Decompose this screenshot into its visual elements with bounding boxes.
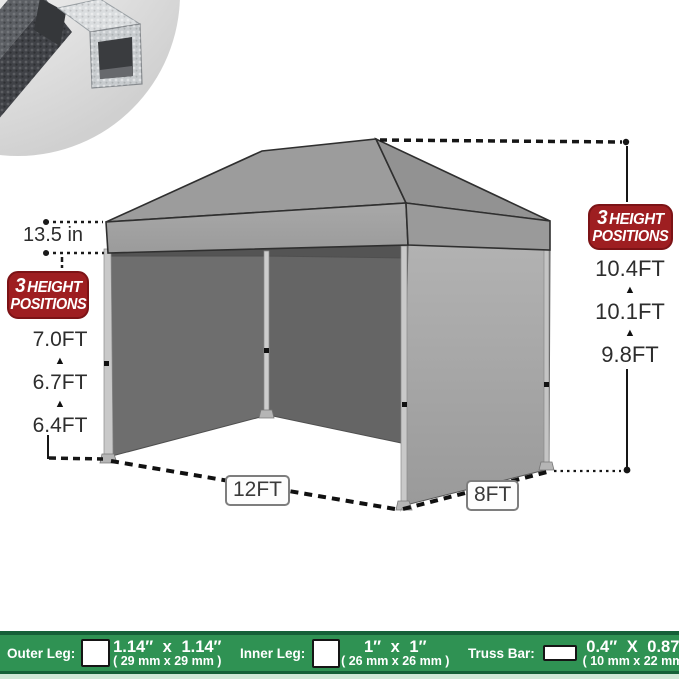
valance-height-label: 13.5 in [18,224,88,247]
measure-dot [623,139,629,145]
inner-leg-spec: Inner Leg: 1″ x 1″ ( 26 mm x 26 mm ) [240,635,443,671]
measure-dot [624,467,631,474]
spec-bar: Outer Leg: 1.14″ x 1.14″ ( 29 mm x 29 mm… [0,631,679,679]
truss-bar-label: Truss Bar: [468,646,535,661]
outer-leg-spec: Outer Leg: 1.14″ x 1.14″ ( 29 mm x 29 mm… [7,635,217,671]
outer-leg-tube-icon [81,639,110,667]
product-dimension-image: 13.5 in 3HEIGHT POSITIONS 3HEIGHT POSITI… [0,0,679,679]
rear-left-leg [264,251,269,414]
back-sidewall-interior [266,256,406,444]
badge-word1: HEIGHT [609,211,664,228]
right-sidewall-exterior [402,244,550,506]
up-arrow-icon: ▲ [625,284,636,297]
leg-adjust-button [104,361,109,366]
spec-bar-main: Outer Leg: 1.14″ x 1.14″ ( 29 mm x 29 mm… [0,635,679,671]
width-dimension-label: 12FT [225,475,290,506]
wall-height-top: 7.0FT [33,328,88,351]
peak-height-scale: 10.4FT ▲ 10.1FT ▲ 9.8FT [587,257,673,366]
badge-word2: POSITIONS [593,228,669,245]
badge-word2: POSITIONS [10,296,86,313]
depth-dimension-label: 8FT [466,480,519,511]
left-sidewall-interior [110,256,268,456]
badge-word1: HEIGHT [27,279,82,296]
inner-leg-label: Inner Leg: [240,646,305,661]
left-ground-dashed-line [49,458,103,459]
badge-count: 3 [597,207,607,229]
inner-leg-dimensions: 1″ x 1″ ( 26 mm x 26 mm ) [347,639,443,668]
leg-adjust-button [264,348,269,353]
height-positions-badge-left: 3HEIGHT POSITIONS [7,271,89,319]
truss-bar-tube-icon [543,645,577,661]
measure-dot [43,250,49,256]
inner-leg-tube-icon [312,639,340,668]
outer-leg-dimensions: 1.14″ x 1.14″ ( 29 mm x 29 mm ) [117,639,217,668]
truss-bar-size-in: 0.4″ X 0.87″ [586,639,679,655]
badge-line1: 3HEIGHT [15,278,82,296]
wall-height-low: 6.4FT [33,414,88,437]
up-arrow-icon: ▲ [55,355,66,368]
wall-height-scale: 7.0FT ▲ 6.7FT ▲ 6.4FT [18,328,102,437]
leg-adjust-button [544,382,549,387]
up-arrow-icon: ▲ [625,327,636,340]
outer-leg-label: Outer Leg: [7,646,75,661]
spec-bar-bottom-strip [0,674,679,679]
outer-leg-size-mm: ( 29 mm x 29 mm ) [113,655,221,668]
leg-tube-closeup-inset [0,0,190,160]
front-right-leg [401,246,407,504]
rear-left-foot [259,410,274,418]
up-arrow-icon: ▲ [55,398,66,411]
truss-bar-dimensions: 0.4″ X 0.87″ ( 10 mm x 22 mm ) [587,639,679,668]
leg-adjust-button [402,402,407,407]
wall-height-mid: 6.7FT [33,371,88,394]
peak-height-top: 10.4FT [595,257,665,280]
peak-height-mid: 10.1FT [595,300,665,323]
rear-right-leg [544,250,549,467]
front-left-leg [104,249,113,456]
truss-bar-size-mm: ( 10 mm x 22 mm ) [583,655,679,668]
inner-leg-size-in: 1″ x 1″ [364,639,427,655]
badge-count: 3 [15,275,25,297]
outer-leg-size-in: 1.14″ x 1.14″ [113,639,221,655]
height-positions-badge-right: 3HEIGHT POSITIONS [588,204,673,250]
inner-leg-size-mm: ( 26 mm x 26 mm ) [341,655,449,668]
peak-dashed-line [380,140,622,142]
peak-height-low: 9.8FT [601,343,658,366]
truss-bar-spec: Truss Bar: 0.4″ X 0.87″ ( 10 mm x 22 mm … [468,635,679,671]
rear-right-foot [539,462,554,470]
badge-line1: 3HEIGHT [597,210,664,228]
